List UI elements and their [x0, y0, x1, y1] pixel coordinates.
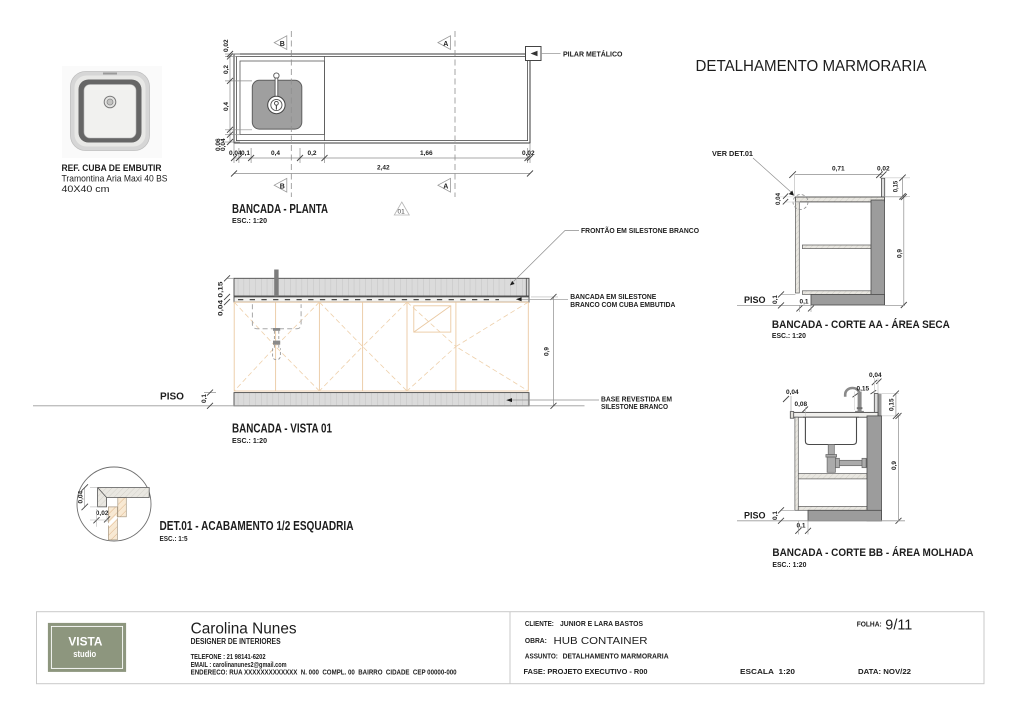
svg-text:VISTA: VISTA	[68, 635, 102, 649]
svg-text:EMAIL : carolinanunes2@gmail.c: EMAIL : carolinanunes2@gmail.com	[191, 662, 287, 669]
svg-text:0,04: 0,04	[869, 372, 882, 379]
svg-text:FOLHA:: FOLHA:	[857, 622, 882, 629]
svg-text:2,42: 2,42	[377, 164, 390, 171]
svg-text:0,4: 0,4	[271, 150, 280, 157]
svg-text:BANCADA - CORTE BB - ÁREA MOLH: BANCADA - CORTE BB - ÁREA MOLHADA	[772, 546, 973, 559]
svg-text:studio: studio	[73, 649, 96, 659]
svg-text:0,02: 0,02	[522, 150, 535, 157]
svg-text:SILESTONE BRANCO: SILESTONE BRANCO	[601, 404, 669, 411]
svg-text:TELEFONE : 21 98141-6202: TELEFONE : 21 98141-6202	[191, 654, 266, 661]
svg-text:0,06: 0,06	[215, 138, 222, 151]
svg-text:0,1: 0,1	[800, 299, 809, 306]
svg-text:0,71: 0,71	[832, 165, 845, 172]
svg-text:0,9: 0,9	[544, 347, 551, 356]
svg-text:0,08: 0,08	[795, 401, 808, 408]
svg-text:0,02: 0,02	[223, 39, 230, 52]
svg-text:BANCADA - PLANTA: BANCADA - PLANTA	[232, 201, 328, 216]
svg-text:1,66: 1,66	[420, 150, 433, 157]
svg-text:DETALHAMENTO MARMORARIA: DETALHAMENTO MARMORARIA	[563, 654, 669, 661]
svg-text:JUNIOR E LARA BASTOS: JUNIOR E LARA BASTOS	[560, 621, 643, 628]
svg-text:BANCADA EM SILESTONE: BANCADA EM SILESTONE	[570, 294, 656, 301]
svg-text:0,1: 0,1	[772, 511, 779, 520]
svg-text:0,2: 0,2	[223, 65, 230, 74]
svg-text:B: B	[280, 41, 285, 48]
svg-text:FASE: PROJETO EXECUTIVO - R00: FASE: PROJETO EXECUTIVO - R00	[524, 669, 648, 676]
svg-text:A: A	[443, 41, 448, 48]
svg-text:0,04: 0,04	[775, 193, 782, 205]
svg-text:0,2: 0,2	[308, 150, 317, 157]
svg-text:HUB CONTAINER: HUB CONTAINER	[554, 636, 648, 647]
svg-text:FRONTÃO EM SILESTONE BRANCO: FRONTÃO EM SILESTONE BRANCO	[581, 226, 700, 235]
svg-text:A: A	[443, 183, 448, 190]
svg-text:B: B	[280, 183, 285, 190]
svg-text:PILAR METÁLICO: PILAR METÁLICO	[563, 50, 623, 59]
svg-text:01: 01	[398, 209, 406, 216]
svg-text:0,15: 0,15	[889, 398, 896, 411]
svg-text:Carolina Nunes: Carolina Nunes	[191, 621, 297, 638]
svg-text:0,02: 0,02	[877, 165, 890, 172]
svg-text:ESC.: 1:20: ESC.: 1:20	[232, 438, 267, 445]
svg-text:PISO: PISO	[744, 295, 766, 305]
svg-text:CLIENTE:: CLIENTE:	[525, 621, 554, 628]
svg-text:9/11: 9/11	[885, 617, 912, 634]
svg-text:0,04 0,15: 0,04 0,15	[218, 281, 225, 316]
svg-text:0,04: 0,04	[786, 389, 799, 396]
svg-text:ESC.: 1:5: ESC.: 1:5	[160, 536, 188, 543]
svg-text:0,15: 0,15	[893, 180, 900, 192]
svg-text:0,04: 0,04	[78, 490, 85, 503]
svg-text:DETALHAMENTO MARMORARIA: DETALHAMENTO MARMORARIA	[696, 58, 927, 75]
svg-text:DATA: NOV/22: DATA: NOV/22	[858, 669, 911, 676]
svg-text:ENDERECO: RUA XXXXXXXXXXXXX N: ENDERECO: RUA XXXXXXXXXXXXX N. 000 COMPL…	[191, 670, 457, 677]
svg-text:40X40 cm: 40X40 cm	[62, 184, 110, 195]
svg-text:0,1: 0,1	[241, 150, 250, 157]
svg-text:DESIGNER DE INTERIORES: DESIGNER DE INTERIORES	[191, 637, 282, 646]
svg-text:0,1: 0,1	[201, 394, 208, 403]
svg-text:BRANCO COM CUBA EMBUTIDA: BRANCO COM CUBA EMBUTIDA	[570, 302, 675, 309]
svg-text:0,4: 0,4	[223, 102, 230, 111]
svg-text:PISO: PISO	[160, 392, 184, 403]
svg-text:BANCADA - CORTE AA - ÁREA SECA: BANCADA - CORTE AA - ÁREA SECA	[772, 318, 950, 331]
svg-text:BASE REVESTIDA EM: BASE REVESTIDA EM	[601, 396, 672, 403]
svg-text:0,9: 0,9	[897, 249, 904, 258]
svg-text:VER DET.01: VER DET.01	[712, 151, 753, 158]
svg-text:0,9: 0,9	[891, 461, 898, 470]
svg-text:0,1: 0,1	[772, 295, 779, 304]
svg-text:ESC.: 1:20: ESC.: 1:20	[772, 333, 806, 340]
svg-text:OBRA:: OBRA:	[525, 638, 547, 645]
svg-text:ASSUNTO:: ASSUNTO:	[525, 654, 558, 661]
svg-text:0,15: 0,15	[857, 385, 870, 392]
svg-text:ESC.: 1:20: ESC.: 1:20	[772, 562, 806, 569]
svg-text:PISO: PISO	[744, 511, 766, 521]
svg-text:DET.01 - ACABAMENTO 1/2 ESQUAD: DET.01 - ACABAMENTO 1/2 ESQUADRIA	[160, 519, 354, 533]
svg-text:BANCADA - VISTA 01: BANCADA - VISTA 01	[232, 420, 332, 435]
svg-text:ESCALA 1:20: ESCALA 1:20	[740, 669, 795, 676]
svg-text:ESC.: 1:20: ESC.: 1:20	[232, 218, 267, 225]
